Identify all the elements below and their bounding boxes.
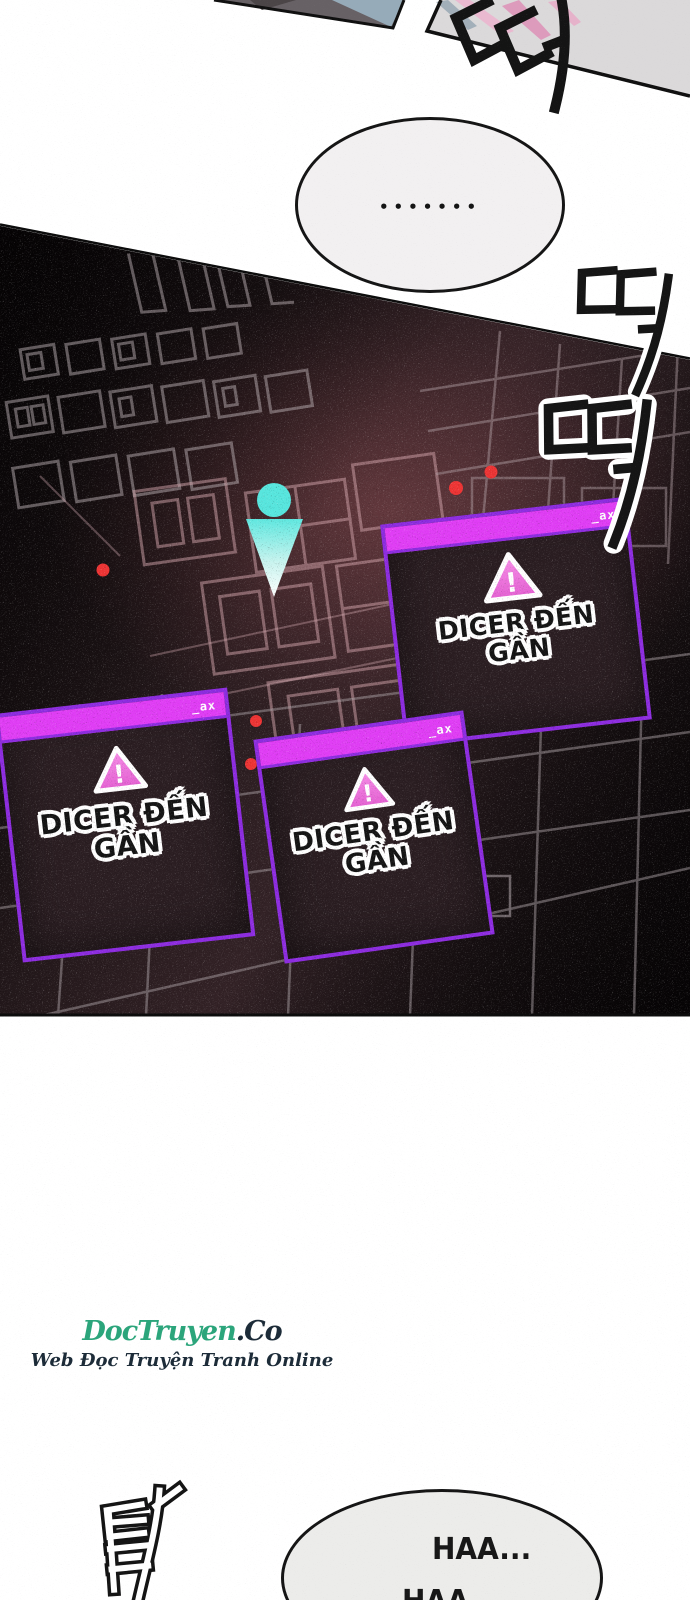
alert-window: _ax ! DICER ĐẾN GẦN [253,710,494,963]
site-tagline: Web Đọc Truyện Tranh Online [17,1350,347,1371]
sfx-beep-lower-icon [520,376,660,566]
site-name: DocTruyen [82,1316,235,1347]
comic-page: ••••••• [0,0,690,1600]
sfx-thud-icon [62,1474,202,1600]
bubble-text-line1: HAA... [432,1531,531,1567]
site-suffix: .Co [236,1316,282,1347]
enemy-dot [485,466,498,479]
warning-triangle-icon: ! [337,761,397,815]
enemy-dot [449,481,463,495]
window-controls[interactable]: _ax [427,722,453,737]
watermark: DocTruyen.Co Web Đọc Truyện Tranh Online [17,1316,347,1371]
speech-bubble-top: ••••••• [295,117,565,293]
bubble-ellipsis-text: ••••••• [298,198,562,216]
window-controls[interactable]: _ax [191,698,217,713]
alert-message: DICER ĐẾN GẦN [437,600,599,673]
alert-message: DICER ĐẾN GẦN [38,793,213,872]
bubble-text-line2: HAA [402,1583,469,1600]
player-marker-icon [246,483,303,597]
site-logo: DocTruyen.Co [17,1316,347,1347]
warning-triangle-icon: ! [87,740,150,796]
speech-bubble-bottom: HAA... HAA [281,1489,603,1600]
alert-message: DICER ĐẾN GẦN [291,807,461,887]
alert-window: _ax ! DICER ĐẾN GẦN [0,688,255,963]
enemy-dot [250,715,262,727]
enemy-dot [97,564,110,577]
alert-body: ! DICER ĐẾN GẦN [2,718,242,875]
